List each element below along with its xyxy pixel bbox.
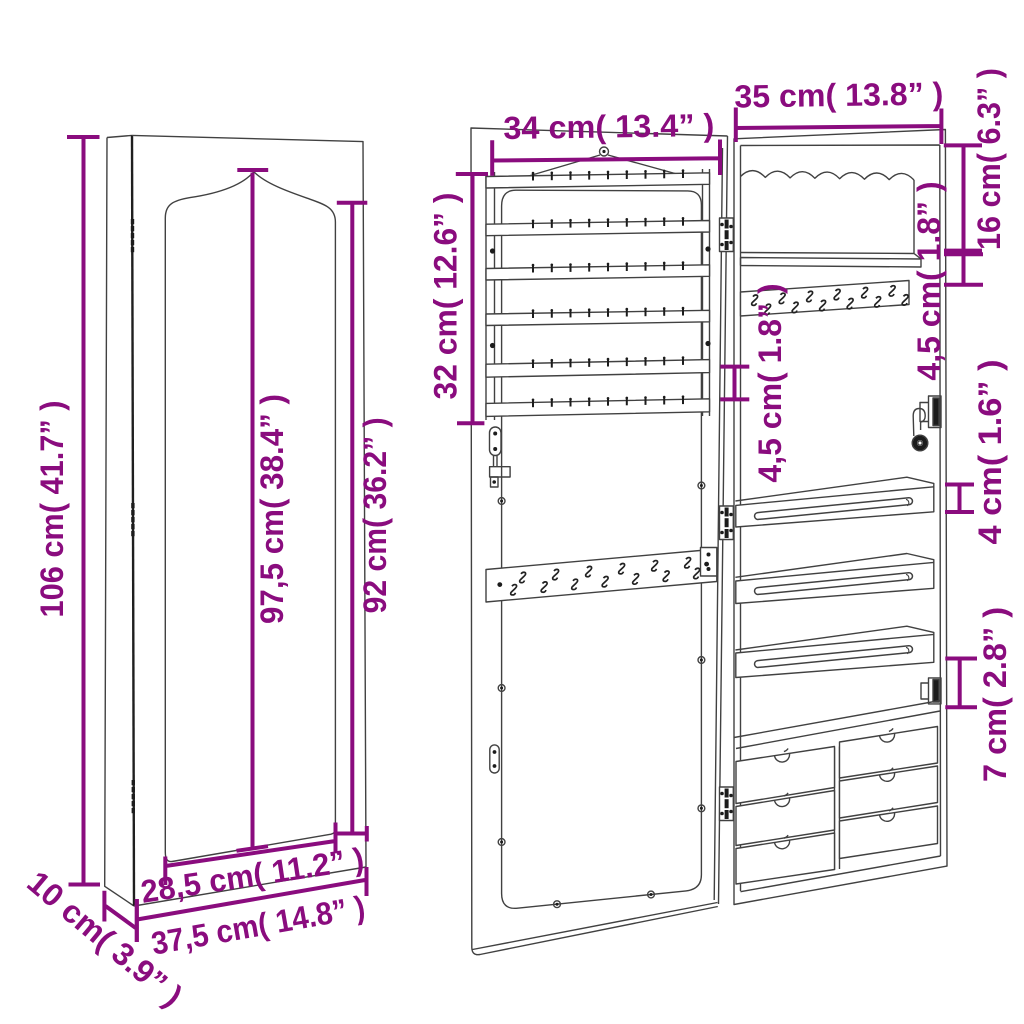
svg-text:7 cm( 2.8” ): 7 cm( 2.8” ) [977, 607, 1013, 782]
svg-text:16 cm( 6.3” ): 16 cm( 6.3” ) [971, 68, 1007, 250]
svg-text:97,5 cm( 38.4” ): 97,5 cm( 38.4” ) [254, 394, 290, 624]
svg-text:4,5 cm( 1.8” ): 4,5 cm( 1.8” ) [752, 283, 788, 482]
svg-text:34 cm( 13.4” ): 34 cm( 13.4” ) [503, 107, 714, 146]
svg-text:32 cm( 12.6” ): 32 cm( 12.6” ) [428, 193, 464, 400]
svg-text:4,5 cm( 1.8” ): 4,5 cm( 1.8” ) [911, 181, 947, 380]
svg-text:106 cm( 41.7” ): 106 cm( 41.7” ) [34, 401, 70, 618]
svg-text:92 cm( 36.2” ): 92 cm( 36.2” ) [357, 417, 393, 613]
svg-text:35 cm( 13.8” ): 35 cm( 13.8” ) [734, 76, 943, 115]
svg-text:4 cm( 1.6” ): 4 cm( 1.6” ) [972, 360, 1008, 545]
